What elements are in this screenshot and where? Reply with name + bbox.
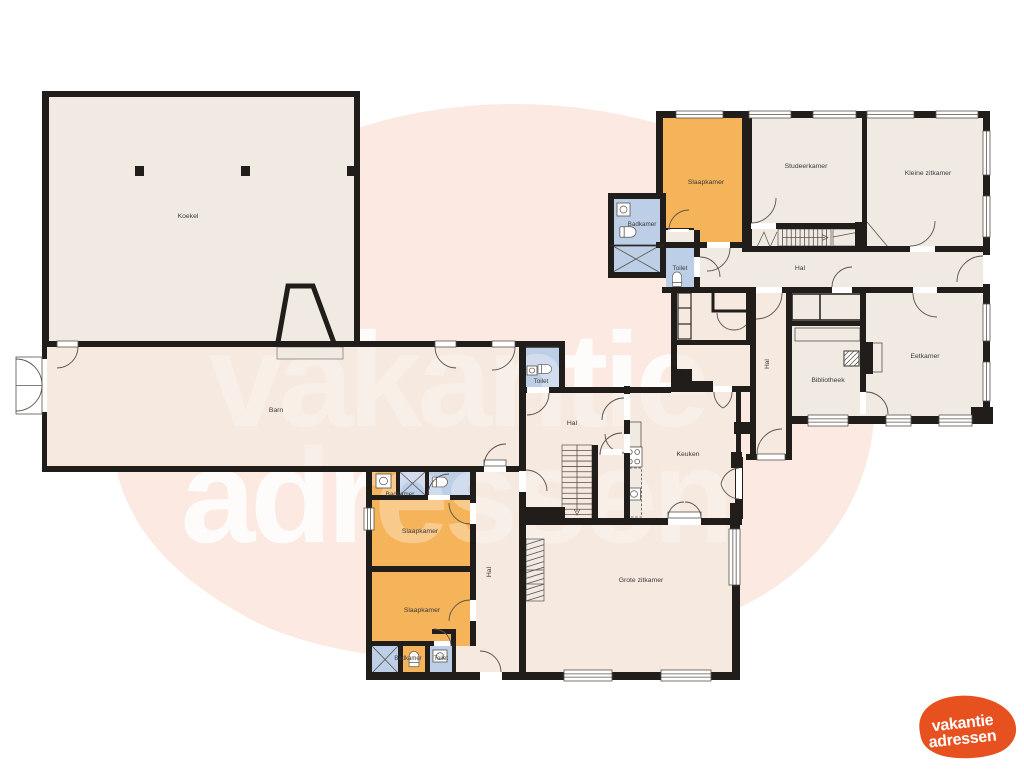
svg-text:Studeerkamer: Studeerkamer [785,163,828,170]
svg-text:Slaapkamer: Slaapkamer [404,607,441,614]
svg-text:Keuken: Keuken [676,451,699,458]
svg-text:Kleine zitkamer: Kleine zitkamer [905,170,952,177]
svg-text:Slaapkamer: Slaapkamer [688,179,725,186]
svg-text:Toilet: Toilet [534,378,549,385]
svg-text:Hal: Hal [567,420,578,427]
svg-text:Toilet: Toilet [434,656,448,662]
svg-text:Hal: Hal [795,265,806,272]
svg-text:Barn: Barn [269,407,284,414]
svg-text:Toilet: Toilet [673,265,688,272]
svg-text:Grote zitkamer: Grote zitkamer [619,577,664,584]
svg-text:Bibliotheek: Bibliotheek [811,377,845,384]
svg-text:Eetkamer: Eetkamer [910,353,940,360]
svg-text:Badkamer: Badkamer [394,656,421,662]
svg-text:Hal: Hal [764,359,771,369]
svg-text:Koekel: Koekel [178,213,199,220]
svg-text:Slaapkamer: Slaapkamer [402,528,439,535]
svg-text:Badkamer: Badkamer [386,491,415,498]
svg-text:Hal: Hal [486,566,493,577]
svg-text:Badkamer: Badkamer [628,221,657,228]
